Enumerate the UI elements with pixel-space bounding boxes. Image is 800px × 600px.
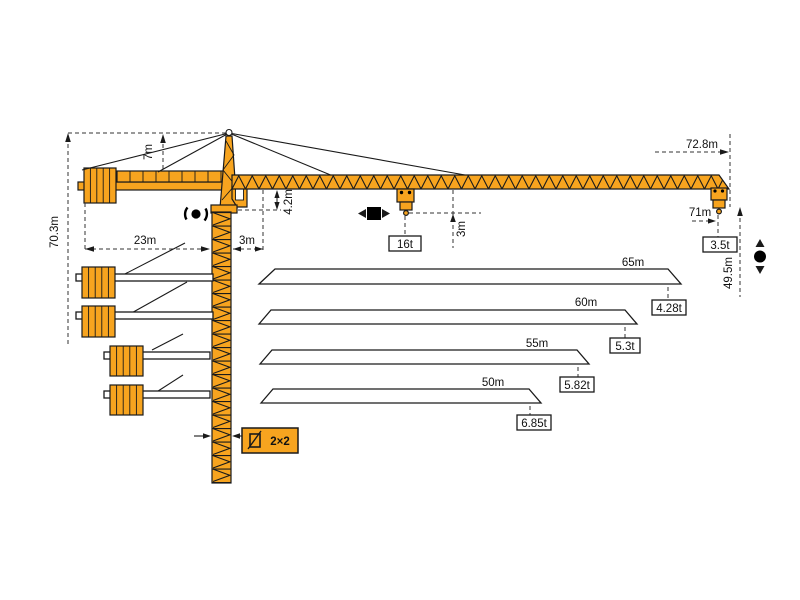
load-chart-row-60m: 60m 5.3t bbox=[259, 297, 640, 353]
load-chart-row-65m: 65m 4.28t bbox=[259, 257, 686, 315]
dimension-counter-jib-radius: 23m bbox=[85, 203, 210, 252]
svg-text:50m: 50m bbox=[482, 377, 504, 389]
svg-text:5.3t: 5.3t bbox=[615, 341, 635, 353]
tower-mast bbox=[212, 212, 231, 483]
ballast-option-4 bbox=[104, 375, 210, 415]
svg-text:3m: 3m bbox=[239, 235, 255, 247]
svg-text:71m: 71m bbox=[689, 207, 711, 219]
apex-pin bbox=[226, 130, 232, 136]
hook-main bbox=[404, 211, 409, 216]
load-chart-row-55m: 55m 5.82t bbox=[260, 338, 594, 392]
load-chart: 65m 4.28t 60m 5.3t 55m 5.82t 50m 6.85t bbox=[259, 257, 686, 430]
svg-text:23m: 23m bbox=[134, 235, 156, 247]
mast-section-label: 2×2 bbox=[270, 436, 290, 448]
jib-length-bar bbox=[261, 389, 541, 403]
crane-diagram: 70.3m 7m bbox=[0, 0, 800, 600]
total-height-label: 70.3m bbox=[49, 216, 61, 248]
jib-length-bar bbox=[259, 269, 681, 284]
counter-jib bbox=[78, 168, 231, 203]
svg-text:49.5m: 49.5m bbox=[723, 257, 735, 289]
svg-text:55m: 55m bbox=[526, 338, 548, 350]
svg-text:60m: 60m bbox=[575, 297, 597, 309]
svg-text:4.28t: 4.28t bbox=[656, 303, 682, 315]
svg-text:72.8m: 72.8m bbox=[686, 139, 718, 151]
jib-length-bar bbox=[260, 350, 589, 364]
ballast-option-1 bbox=[76, 243, 213, 298]
cab-window bbox=[236, 189, 244, 200]
svg-text:65m: 65m bbox=[622, 257, 644, 269]
ballast-option-3 bbox=[104, 334, 210, 376]
svg-text:6.85t: 6.85t bbox=[521, 418, 547, 430]
crane-diagram-svg: 70.3m 7m bbox=[0, 0, 800, 600]
svg-text:5.82t: 5.82t bbox=[564, 380, 590, 392]
dimension-tip-radius: 71m bbox=[689, 207, 716, 224]
counterweight-block bbox=[84, 168, 116, 203]
jib-length-bar bbox=[259, 310, 637, 324]
trolley-travel-icon bbox=[358, 207, 390, 220]
load-chart-row-50m: 50m 6.85t bbox=[261, 377, 551, 430]
hoist-icon bbox=[754, 239, 766, 274]
mast-section-callout: 2×2 bbox=[194, 428, 298, 453]
slewing-icon bbox=[185, 208, 207, 221]
jib bbox=[232, 175, 729, 189]
hook-tip bbox=[717, 209, 722, 214]
trolley-tip bbox=[711, 188, 727, 214]
svg-text:16t: 16t bbox=[397, 239, 414, 251]
trolley-main bbox=[397, 189, 414, 215]
svg-text:3.5t: 3.5t bbox=[710, 240, 730, 252]
svg-text:3m: 3m bbox=[456, 221, 468, 237]
max-capacity-label: 16t bbox=[389, 216, 421, 251]
tie-rods bbox=[82, 133, 465, 176]
svg-text:4.2m: 4.2m bbox=[283, 189, 295, 215]
